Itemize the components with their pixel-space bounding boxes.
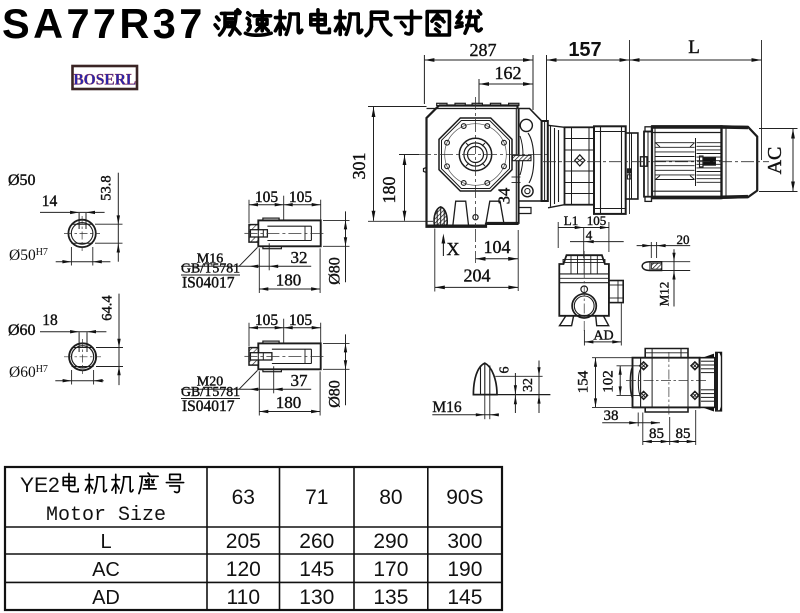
svg-text:20: 20 xyxy=(677,232,690,247)
svg-text:BOSERL: BOSERL xyxy=(73,72,136,89)
svg-text:Motor Size: Motor Size xyxy=(46,504,166,527)
svg-text:Ø50: Ø50 xyxy=(8,172,36,189)
svg-text:YE2: YE2 xyxy=(20,474,60,497)
svg-text:64.4: 64.4 xyxy=(100,295,116,321)
svg-text:301: 301 xyxy=(349,153,369,180)
svg-text:120: 120 xyxy=(226,558,261,581)
svg-text:L: L xyxy=(100,531,111,553)
svg-text:18: 18 xyxy=(42,312,58,329)
svg-text:105: 105 xyxy=(255,312,279,329)
svg-text:204: 204 xyxy=(464,266,491,286)
svg-text:AC: AC xyxy=(764,147,786,175)
svg-text:GB/T5781: GB/T5781 xyxy=(181,384,240,399)
svg-text:Ø80: Ø80 xyxy=(327,380,344,408)
svg-text:34: 34 xyxy=(495,188,514,205)
svg-text:170: 170 xyxy=(373,558,408,581)
svg-text:90S: 90S xyxy=(446,486,483,509)
svg-text:53.8: 53.8 xyxy=(99,175,115,200)
svg-text:290: 290 xyxy=(373,530,408,553)
svg-text:37: 37 xyxy=(291,371,309,390)
svg-text:130: 130 xyxy=(299,586,334,609)
svg-text:SA77R37: SA77R37 xyxy=(2,0,206,47)
svg-text:190: 190 xyxy=(447,558,482,581)
svg-text:85: 85 xyxy=(676,426,691,442)
svg-text:154: 154 xyxy=(576,370,592,393)
svg-text:287: 287 xyxy=(470,40,497,60)
svg-text:145: 145 xyxy=(447,586,482,609)
svg-text:260: 260 xyxy=(299,530,334,553)
svg-text:32: 32 xyxy=(521,378,536,392)
svg-text:32: 32 xyxy=(291,248,308,267)
svg-text:205: 205 xyxy=(226,530,261,553)
svg-text:102: 102 xyxy=(601,370,617,393)
svg-text:4: 4 xyxy=(586,228,593,243)
svg-text:300: 300 xyxy=(447,530,482,553)
svg-text:38: 38 xyxy=(604,408,619,424)
svg-text:X: X xyxy=(447,239,460,259)
svg-text:105: 105 xyxy=(255,189,279,206)
svg-text:14: 14 xyxy=(42,193,58,210)
svg-text:AC: AC xyxy=(92,559,120,581)
svg-text:AD: AD xyxy=(593,329,613,344)
svg-text:M16: M16 xyxy=(432,399,462,416)
svg-text:135: 135 xyxy=(373,586,408,609)
svg-text:110: 110 xyxy=(227,586,260,609)
svg-text:104: 104 xyxy=(484,237,511,257)
svg-text:AD: AD xyxy=(92,587,120,609)
svg-text:85: 85 xyxy=(649,426,664,442)
svg-text:Ø80: Ø80 xyxy=(327,257,344,285)
svg-text:IS04017: IS04017 xyxy=(182,275,235,292)
svg-text:145: 145 xyxy=(299,558,334,581)
svg-text:6: 6 xyxy=(498,367,513,374)
svg-text:63: 63 xyxy=(232,486,255,509)
svg-text:105: 105 xyxy=(587,213,607,228)
svg-text:80: 80 xyxy=(379,486,402,509)
svg-text:105: 105 xyxy=(289,189,313,206)
svg-text:105: 105 xyxy=(289,312,313,329)
svg-text:157: 157 xyxy=(568,39,601,61)
svg-text:L: L xyxy=(688,37,700,58)
svg-text:162: 162 xyxy=(495,63,522,83)
svg-text:IS04017: IS04017 xyxy=(182,398,235,415)
svg-text:180: 180 xyxy=(379,177,399,204)
svg-text:180: 180 xyxy=(276,393,302,412)
svg-text:180: 180 xyxy=(276,271,302,290)
svg-text:M12: M12 xyxy=(657,282,672,307)
svg-text:71: 71 xyxy=(305,486,328,509)
svg-text:L1: L1 xyxy=(564,213,578,228)
svg-text:GB/T5781: GB/T5781 xyxy=(181,261,240,276)
svg-text:Ø60: Ø60 xyxy=(8,322,36,339)
